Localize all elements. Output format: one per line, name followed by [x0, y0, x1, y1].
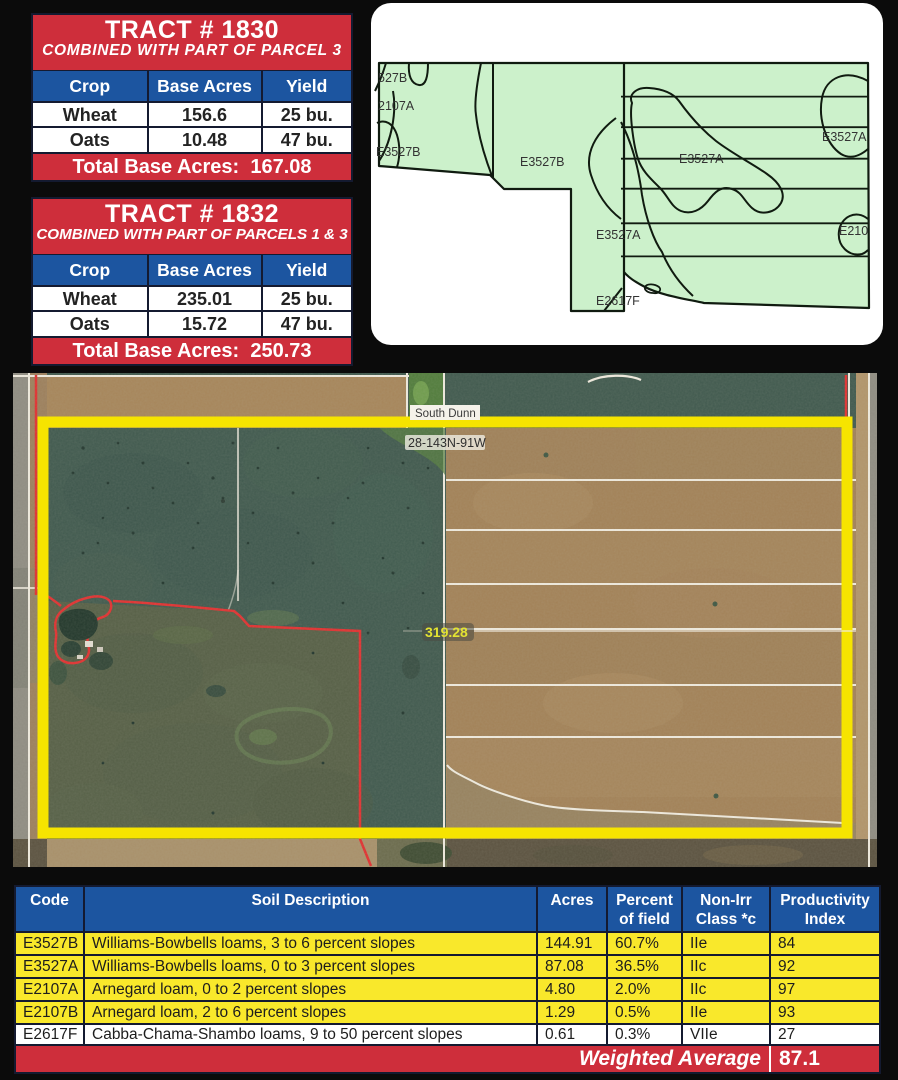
- svg-text:527B: 527B: [378, 71, 407, 85]
- svg-text:E210: E210: [839, 224, 868, 238]
- svg-text:319.28: 319.28: [425, 624, 468, 640]
- svg-text:E3527A: E3527A: [822, 130, 867, 144]
- svg-text:E3527A: E3527A: [679, 152, 724, 166]
- svg-text:2107A: 2107A: [378, 99, 415, 113]
- svg-text:E2617F: E2617F: [596, 294, 640, 308]
- svg-text:South Dunn: South Dunn: [415, 408, 476, 420]
- svg-text:E3527B: E3527B: [520, 155, 564, 169]
- svg-text:E3527A: E3527A: [596, 228, 641, 242]
- svg-text:28-143N-91W: 28-143N-91W: [408, 436, 486, 450]
- svg-text:E3527B: E3527B: [376, 145, 420, 159]
